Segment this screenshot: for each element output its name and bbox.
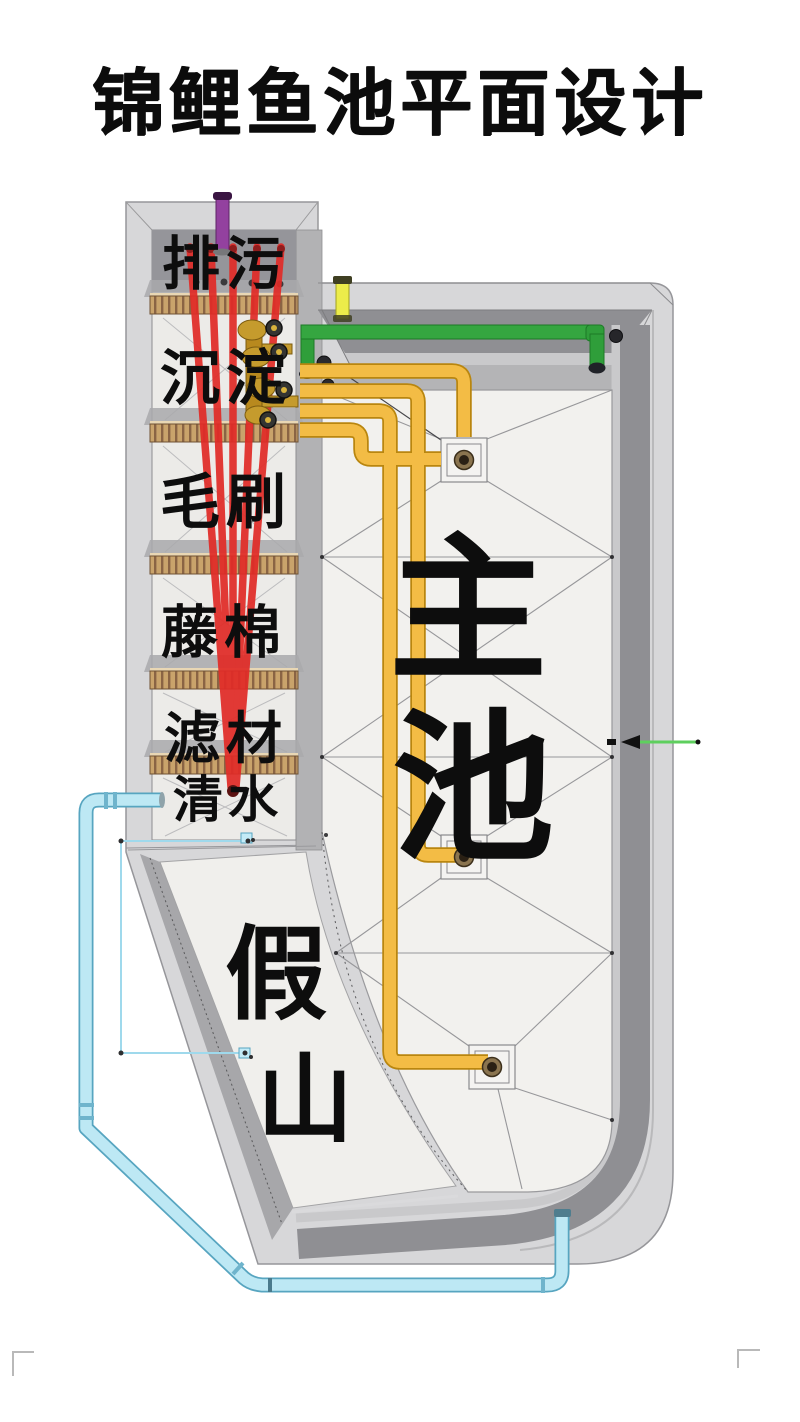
label-chamber-drain: 排污 (162, 230, 290, 298)
crop-marks (12, 1350, 760, 1376)
label-chamber-sedimentation: 沉淀 (160, 344, 292, 414)
label-main-pool-2: 池 (392, 696, 554, 884)
label-chamber-clearwater: 清水 (173, 771, 283, 829)
label-rockery-1: 假 (225, 916, 327, 1035)
crop-mark-bottom-left (12, 1352, 34, 1376)
poster: 锦鲤鱼池平面设计 (0, 0, 800, 1422)
label-chamber-media: 滤材 (164, 707, 288, 772)
label-rockery-2: 山 (257, 1044, 353, 1156)
label-main-pool-1: 主 (389, 519, 547, 703)
crop-mark-bottom-right (737, 1350, 760, 1368)
pond-plan-diagram: 排污 沉淀 毛刷 藤棉 滤材 清水 主 池 假 山 (0, 0, 800, 1422)
label-chamber-matala: 藤棉 (161, 600, 287, 666)
label-chamber-brushes: 毛刷 (160, 468, 292, 538)
yellow-standpipe (333, 276, 352, 322)
